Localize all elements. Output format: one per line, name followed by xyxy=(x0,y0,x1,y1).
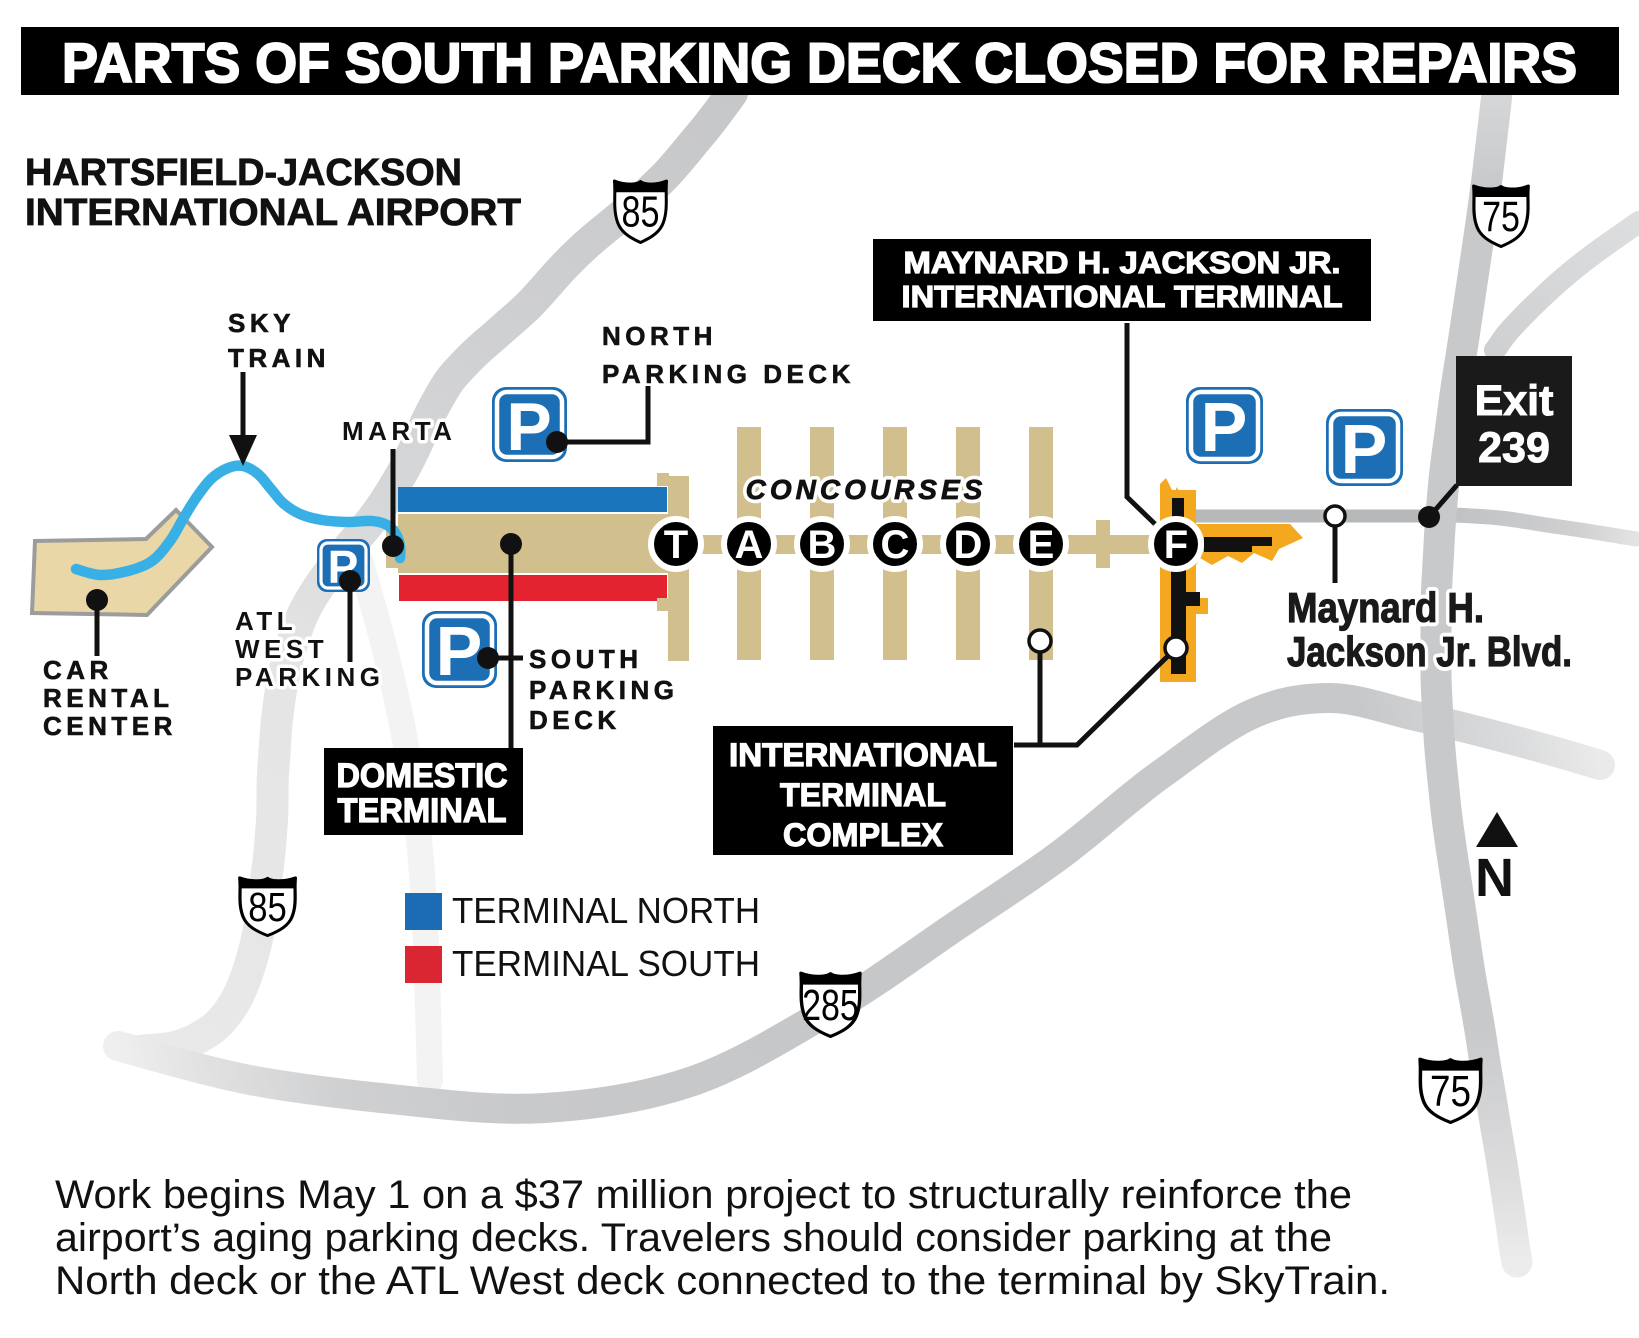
svg-text:TRAIN: TRAIN xyxy=(228,343,330,373)
svg-text:PARKING DECK: PARKING DECK xyxy=(602,359,855,389)
svg-text:HARTSFIELD-JACKSON: HARTSFIELD-JACKSON xyxy=(25,152,462,194)
svg-text:Maynard H.: Maynard H. xyxy=(1287,584,1484,631)
svg-text:75: 75 xyxy=(1430,1067,1471,1116)
svg-text:DECK: DECK xyxy=(529,705,621,735)
svg-text:85: 85 xyxy=(622,188,660,236)
svg-text:TERMINAL: TERMINAL xyxy=(780,777,946,813)
svg-text:P: P xyxy=(1201,388,1248,466)
svg-text:F: F xyxy=(1164,523,1188,567)
svg-text:239: 239 xyxy=(1478,424,1550,472)
svg-text:N: N xyxy=(1475,848,1514,908)
svg-text:MAYNARD H. JACKSON JR.: MAYNARD H. JACKSON JR. xyxy=(904,245,1341,280)
svg-text:A: A xyxy=(735,523,764,567)
svg-text:B: B xyxy=(808,523,837,567)
svg-text:INTERNATIONAL TERMINAL: INTERNATIONAL TERMINAL xyxy=(902,279,1343,314)
svg-text:TERMINAL SOUTH: TERMINAL SOUTH xyxy=(452,943,760,984)
svg-text:75: 75 xyxy=(1482,193,1520,241)
svg-text:Exit: Exit xyxy=(1475,377,1554,425)
svg-text:INTERNATIONAL AIRPORT: INTERNATIONAL AIRPORT xyxy=(25,192,521,234)
svg-text:285: 285 xyxy=(802,981,859,1030)
svg-text:SOUTH: SOUTH xyxy=(529,644,643,674)
svg-text:COMPLEX: COMPLEX xyxy=(783,817,944,853)
svg-text:Work begins May 1 on a $37 mil: Work begins May 1 on a $37 million proje… xyxy=(55,1173,1352,1217)
svg-text:SKY: SKY xyxy=(228,308,295,338)
svg-text:DOMESTIC: DOMESTIC xyxy=(337,757,508,795)
svg-text:RENTAL: RENTAL xyxy=(43,683,174,713)
svg-text:D: D xyxy=(954,523,983,567)
svg-text:PARKING: PARKING xyxy=(529,675,678,705)
svg-text:E: E xyxy=(1028,523,1055,567)
svg-text:airport’s aging parking decks.: airport’s aging parking decks. Travelers… xyxy=(55,1216,1332,1260)
svg-text:P: P xyxy=(506,389,551,465)
svg-text:P: P xyxy=(1341,410,1388,488)
svg-text:CAR: CAR xyxy=(43,655,113,685)
svg-text:NORTH: NORTH xyxy=(602,321,717,351)
svg-text:CENTER: CENTER xyxy=(43,711,177,741)
svg-text:North deck or the ATL West dec: North deck or the ATL West deck connecte… xyxy=(55,1259,1390,1303)
svg-text:Jackson Jr. Blvd.: Jackson Jr. Blvd. xyxy=(1287,628,1572,675)
svg-text:INTERNATIONAL: INTERNATIONAL xyxy=(729,737,997,773)
svg-text:MARTA: MARTA xyxy=(342,416,456,446)
svg-text:TERMINAL: TERMINAL xyxy=(338,792,507,830)
svg-text:ATL: ATL xyxy=(235,606,297,636)
svg-text:P: P xyxy=(436,612,483,690)
svg-text:T: T xyxy=(664,523,688,567)
svg-text:PARKING: PARKING xyxy=(235,662,384,692)
svg-text:85: 85 xyxy=(248,885,287,930)
svg-text:WEST: WEST xyxy=(235,634,328,664)
svg-text:PARTS OF SOUTH PARKING DECK CL: PARTS OF SOUTH PARKING DECK CLOSED FOR R… xyxy=(62,31,1577,94)
svg-text:C: C xyxy=(881,523,910,567)
svg-text:CONCOURSES: CONCOURSES xyxy=(746,474,987,505)
svg-text:TERMINAL NORTH: TERMINAL NORTH xyxy=(452,890,760,931)
